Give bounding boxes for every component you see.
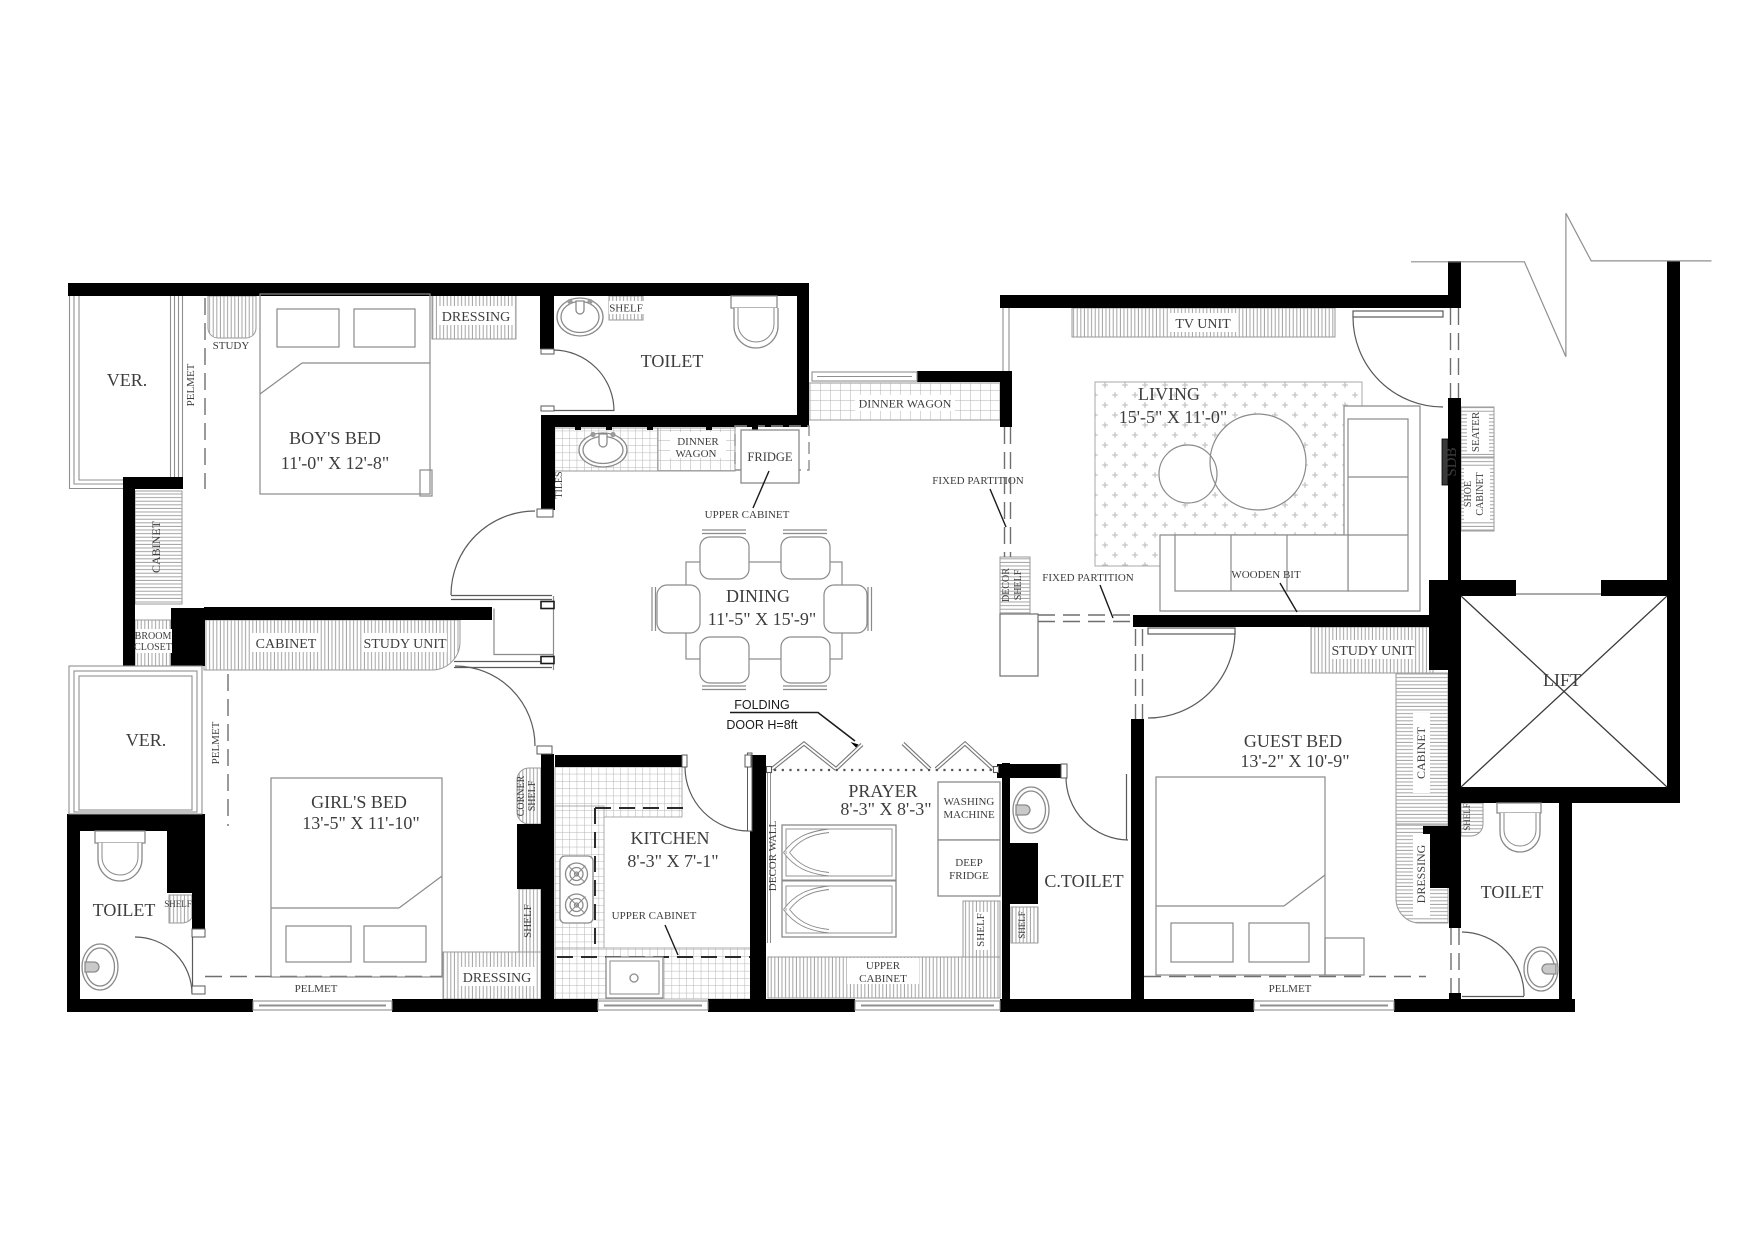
svg-text:SHELF: SHELF (975, 913, 987, 947)
svg-text:GIRL'S BED: GIRL'S BED (311, 792, 407, 812)
svg-text:LIVING: LIVING (1138, 384, 1200, 404)
svg-text:DEEP: DEEP (955, 857, 983, 869)
svg-text:CORNER: CORNER (516, 775, 527, 816)
svg-text:SHELF: SHELF (1013, 569, 1024, 600)
svg-text:SHELF: SHELF (1017, 911, 1027, 939)
svg-text:CABINET: CABINET (1414, 726, 1428, 779)
svg-text:SHELF: SHELF (609, 303, 643, 315)
svg-text:SEATER: SEATER (1470, 411, 1482, 452)
svg-text:DECOR: DECOR (1001, 568, 1012, 602)
svg-text:VER.: VER. (126, 730, 167, 750)
svg-text:CABINET: CABINET (859, 973, 907, 985)
svg-text:DRESSING: DRESSING (442, 310, 510, 325)
svg-text:LIFT: LIFT (1543, 670, 1581, 690)
svg-text:SHELF: SHELF (522, 904, 534, 938)
svg-text:8'-3" X 8'-3": 8'-3" X 8'-3" (840, 799, 931, 819)
svg-text:TOILET: TOILET (93, 900, 156, 920)
svg-text:PELMET: PELMET (185, 363, 197, 406)
svg-text:FOLDING: FOLDING (734, 698, 790, 712)
svg-text:DRESSING: DRESSING (1414, 844, 1428, 903)
svg-text:SDB: SDB (1444, 447, 1460, 476)
svg-text:KITCHEN: KITCHEN (631, 828, 710, 848)
svg-text:DECOR WALL: DECOR WALL (767, 821, 779, 892)
svg-text:11'-0" X 12'-8": 11'-0" X 12'-8" (281, 453, 390, 473)
svg-text:STUDY: STUDY (213, 340, 250, 352)
svg-text:13'-2" X 10'-9": 13'-2" X 10'-9" (1240, 751, 1349, 771)
svg-text:CLOSET: CLOSET (134, 642, 172, 653)
svg-text:PELMET: PELMET (295, 983, 338, 995)
svg-text:VER.: VER. (107, 370, 148, 390)
svg-text:SHELF: SHELF (527, 780, 538, 811)
svg-text:FRIDGE: FRIDGE (747, 450, 793, 464)
svg-text:UPPER CABINET: UPPER CABINET (705, 509, 790, 521)
svg-text:FIXED PARTITION: FIXED PARTITION (932, 475, 1024, 487)
svg-text:GUEST BED: GUEST BED (1244, 731, 1342, 751)
svg-text:STUDY UNIT: STUDY UNIT (1331, 644, 1415, 659)
svg-text:TOILET: TOILET (641, 351, 704, 371)
svg-text:CABINET: CABINET (1475, 472, 1486, 515)
svg-text:FRIDGE: FRIDGE (949, 870, 989, 882)
svg-text:WASHING: WASHING (944, 796, 995, 808)
svg-text:CABINET: CABINET (256, 637, 317, 652)
svg-text:PELMET: PELMET (210, 721, 222, 764)
svg-text:DOOR H=8ft: DOOR H=8ft (726, 718, 798, 732)
svg-text:SHELF: SHELF (1462, 803, 1472, 831)
svg-text:C.TOILET: C.TOILET (1044, 871, 1123, 891)
svg-text:MACHINE: MACHINE (943, 809, 995, 821)
svg-text:CABINET: CABINET (149, 520, 163, 573)
svg-text:DINNER WAGON: DINNER WAGON (859, 397, 952, 411)
svg-text:BROOM: BROOM (135, 631, 172, 642)
svg-text:WAGON: WAGON (676, 448, 717, 460)
svg-text:15'-5" X 11'-0": 15'-5" X 11'-0" (1119, 407, 1228, 427)
svg-text:PELMET: PELMET (1269, 983, 1312, 995)
svg-text:DRESSING: DRESSING (463, 971, 531, 986)
svg-text:UPPER: UPPER (866, 960, 901, 972)
svg-text:8'-3" X 7'-1": 8'-3" X 7'-1" (627, 851, 718, 871)
svg-text:STUDY UNIT: STUDY UNIT (363, 637, 447, 652)
svg-text:TOILET: TOILET (1481, 882, 1544, 902)
svg-text:TV UNIT: TV UNIT (1175, 317, 1231, 332)
svg-text:11'-5" X 15'-9": 11'-5" X 15'-9" (708, 609, 817, 629)
svg-text:SHELF: SHELF (164, 899, 192, 909)
svg-text:13'-5" X 11'-10": 13'-5" X 11'-10" (302, 813, 420, 833)
svg-text:PRAYER: PRAYER (848, 781, 917, 801)
svg-text:SHOE: SHOE (1463, 481, 1474, 507)
svg-text:FIXED PARTITION: FIXED PARTITION (1042, 572, 1134, 584)
svg-text:TILES: TILES (554, 471, 565, 498)
svg-text:DINNER: DINNER (677, 436, 719, 448)
svg-text:BOY'S BED: BOY'S BED (289, 428, 381, 448)
svg-text:DINING: DINING (726, 586, 790, 606)
svg-text:UPPER CABINET: UPPER CABINET (612, 910, 697, 922)
svg-text:WOODEN BIT: WOODEN BIT (1231, 569, 1301, 581)
